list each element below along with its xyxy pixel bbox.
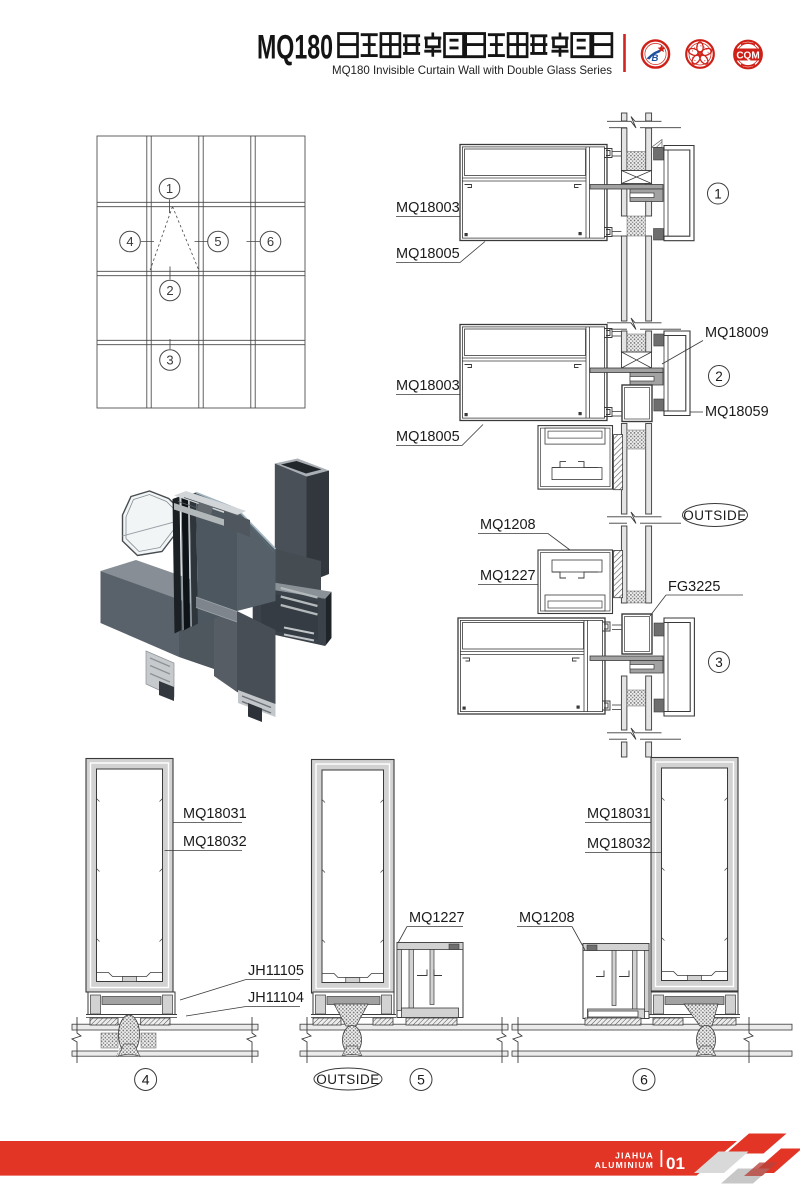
svg-text:B: B (652, 53, 659, 64)
svg-text:MQ1208: MQ1208 (480, 517, 536, 533)
svg-text:MQ18059: MQ18059 (705, 404, 769, 420)
svg-text:MQ18032: MQ18032 (587, 836, 651, 852)
svg-text:MQ18009: MQ18009 (705, 325, 769, 341)
svg-text:3: 3 (166, 353, 173, 368)
svg-text:ALUMINIUM: ALUMINIUM (595, 1160, 654, 1170)
svg-text:6: 6 (267, 234, 274, 249)
svg-text:MQ18005: MQ18005 (396, 246, 460, 262)
svg-text:CQM: CQM (736, 50, 759, 61)
svg-text:MQ1227: MQ1227 (409, 910, 465, 926)
svg-text:JIAHUA: JIAHUA (615, 1151, 654, 1161)
svg-text:JH11105: JH11105 (248, 963, 304, 979)
svg-text:MQ18031: MQ18031 (587, 806, 651, 822)
svg-text:6: 6 (640, 1072, 648, 1088)
svg-text:OUTSIDE: OUTSIDE (683, 508, 747, 523)
svg-text:3: 3 (715, 655, 723, 670)
svg-text:FG3225: FG3225 (668, 579, 720, 595)
svg-text:MQ18032: MQ18032 (183, 834, 247, 850)
svg-text:1: 1 (714, 186, 722, 201)
svg-text:2: 2 (715, 369, 723, 384)
svg-text:2: 2 (166, 283, 173, 298)
svg-text:JH11104: JH11104 (248, 990, 304, 1006)
svg-text:MQ180: MQ180 (257, 29, 333, 67)
svg-text:MQ18031: MQ18031 (183, 806, 247, 822)
svg-text:MQ18005: MQ18005 (396, 429, 460, 445)
svg-text:5: 5 (214, 234, 221, 249)
svg-text:MQ180 Invisible Curtain Wall w: MQ180 Invisible Curtain Wall with Double… (332, 63, 612, 77)
svg-text:4: 4 (142, 1072, 150, 1088)
svg-text:MQ18003: MQ18003 (396, 200, 460, 216)
svg-text:MQ1208: MQ1208 (519, 910, 575, 926)
svg-text:4: 4 (126, 234, 133, 249)
svg-text:01: 01 (666, 1154, 685, 1173)
svg-text:OUTSIDE: OUTSIDE (316, 1072, 380, 1087)
svg-text:MQ1227: MQ1227 (480, 568, 536, 584)
svg-text:MQ18003: MQ18003 (396, 378, 460, 394)
svg-text:5: 5 (417, 1072, 425, 1088)
svg-text:1: 1 (166, 181, 173, 196)
